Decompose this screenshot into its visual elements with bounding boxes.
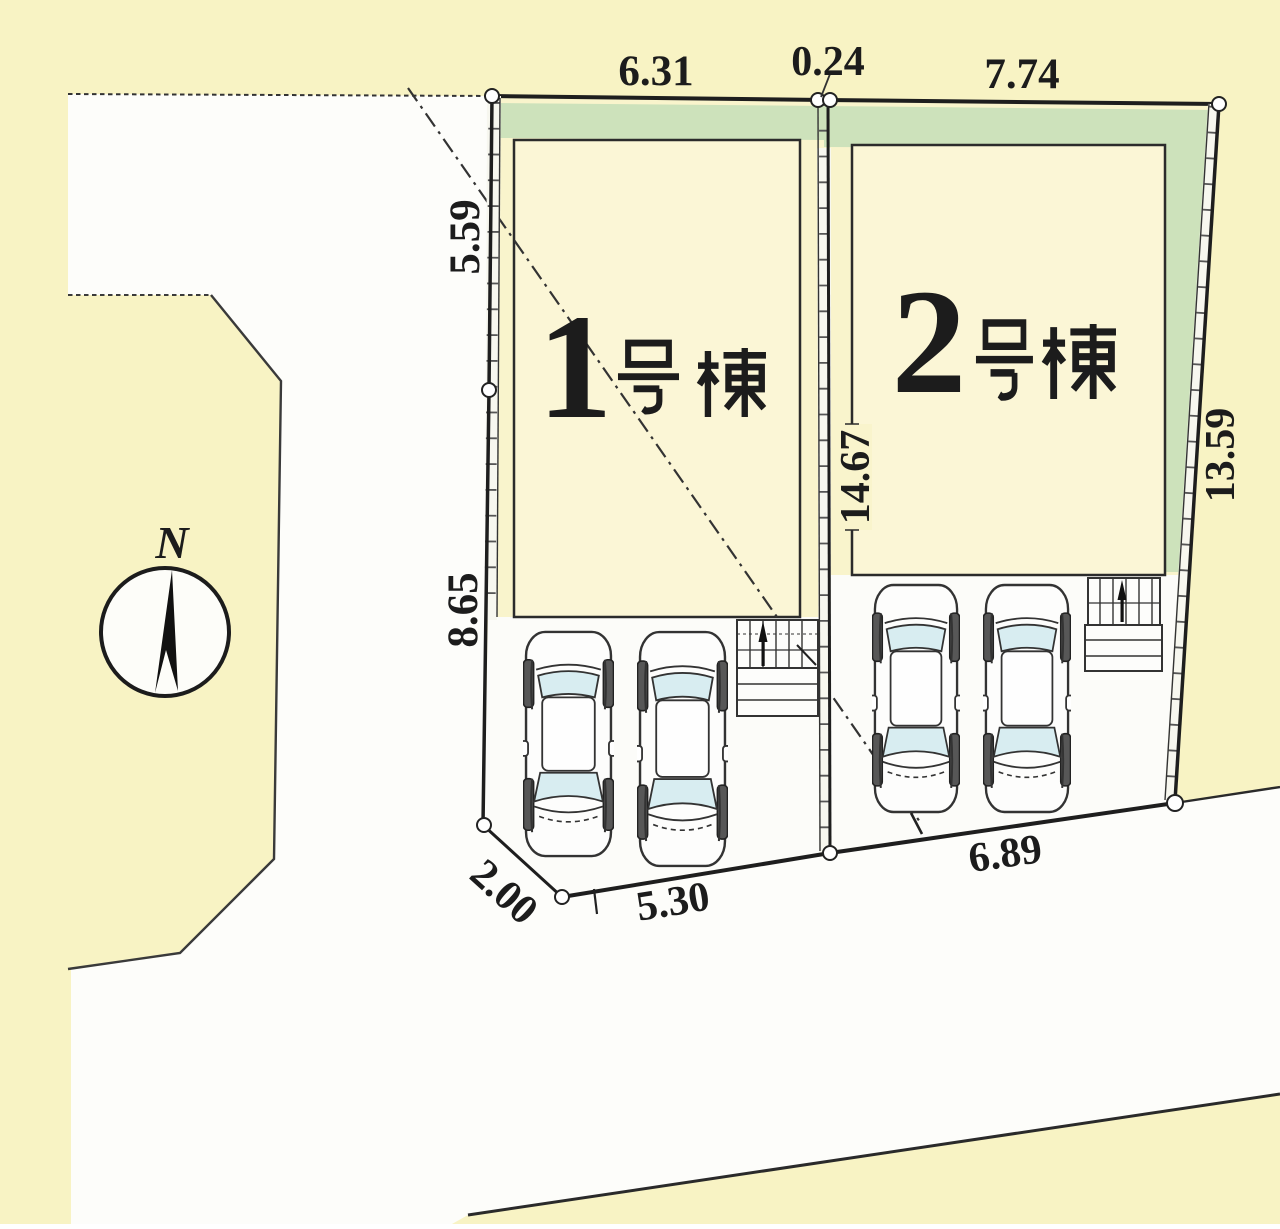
svg-text:14.67: 14.67 bbox=[833, 430, 879, 525]
svg-text:2: 2 bbox=[892, 259, 967, 425]
svg-text:13.59: 13.59 bbox=[1198, 408, 1244, 503]
svg-text:5.59: 5.59 bbox=[442, 199, 489, 274]
svg-text:8.65: 8.65 bbox=[440, 572, 487, 647]
svg-text:7.74: 7.74 bbox=[984, 51, 1059, 98]
svg-text:6.31: 6.31 bbox=[618, 48, 693, 95]
svg-text:N: N bbox=[154, 517, 190, 568]
svg-text:1: 1 bbox=[538, 284, 613, 450]
svg-text:0.24: 0.24 bbox=[791, 39, 865, 85]
